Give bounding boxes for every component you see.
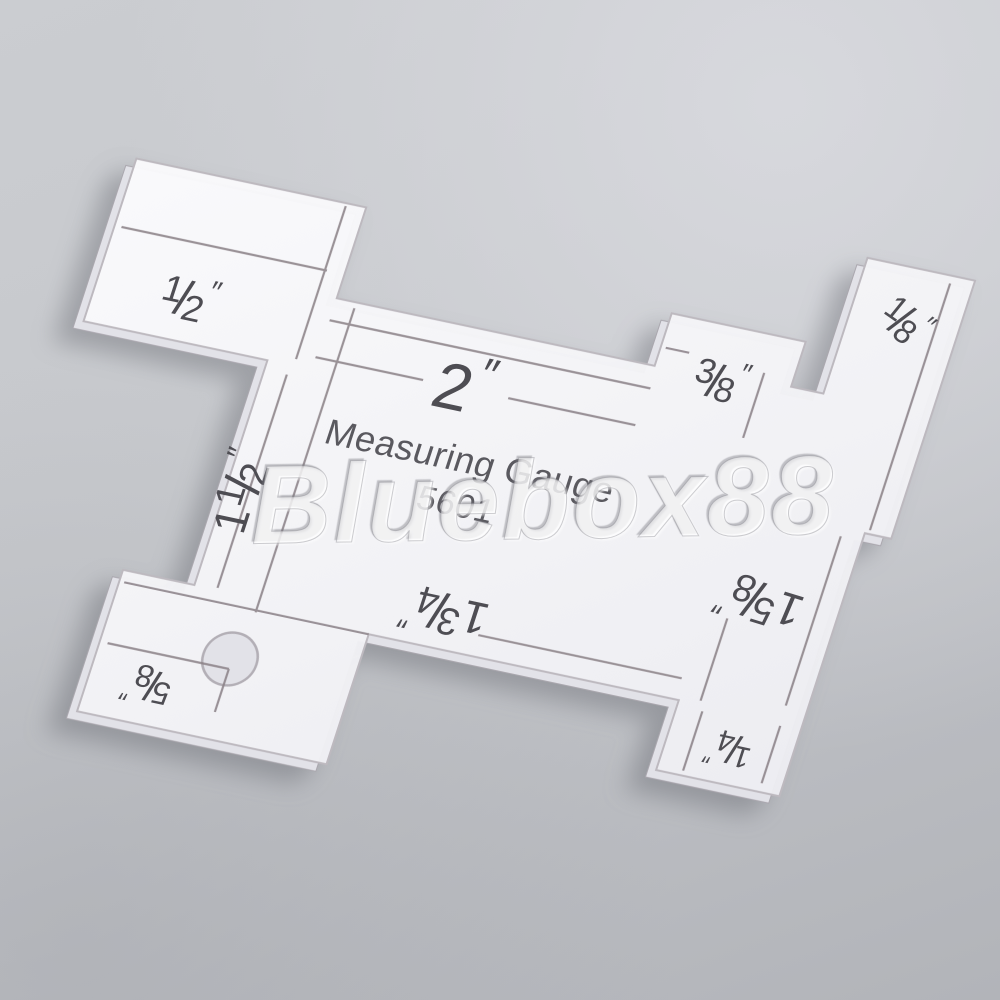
watermark-text: Bluebox88 — [250, 430, 837, 569]
